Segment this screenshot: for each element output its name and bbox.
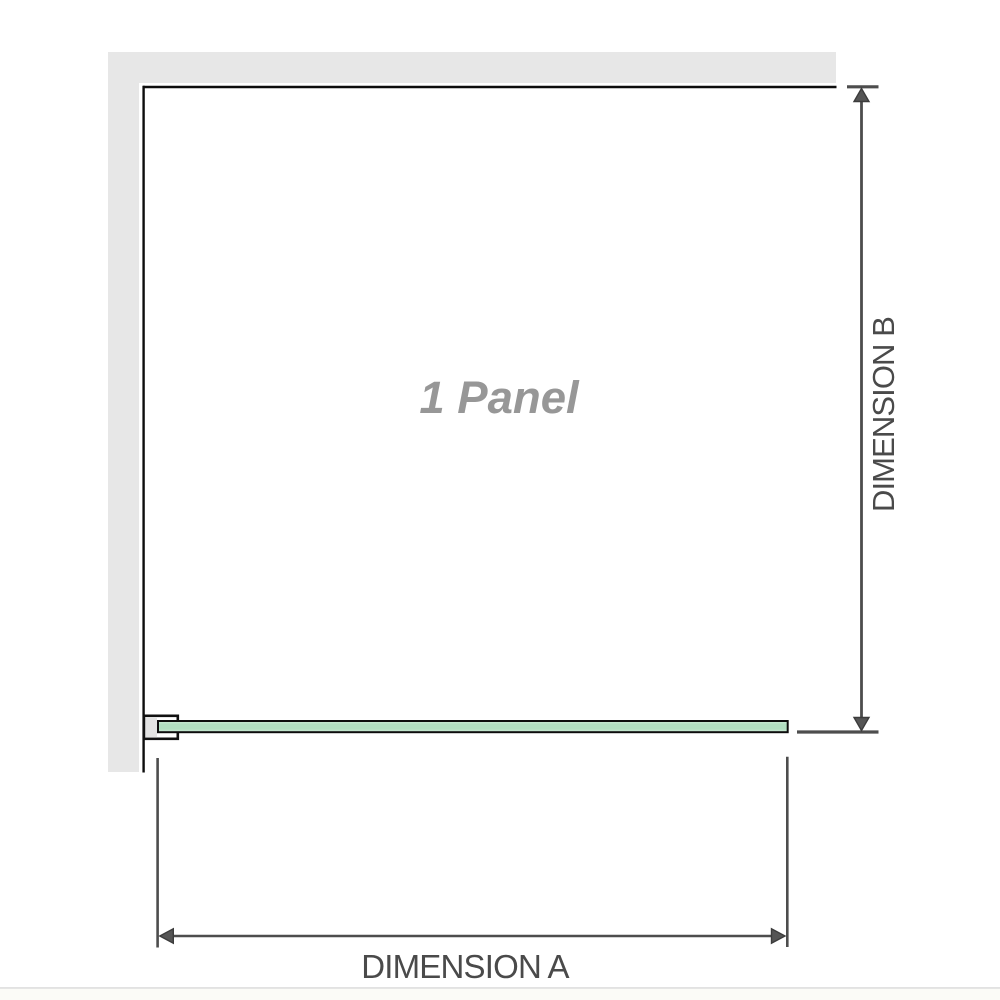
svg-text:DIMENSION A: DIMENSION A [361, 948, 569, 985]
svg-text:1 Panel: 1 Panel [419, 372, 580, 423]
svg-text:DIMENSION B: DIMENSION B [866, 317, 901, 512]
